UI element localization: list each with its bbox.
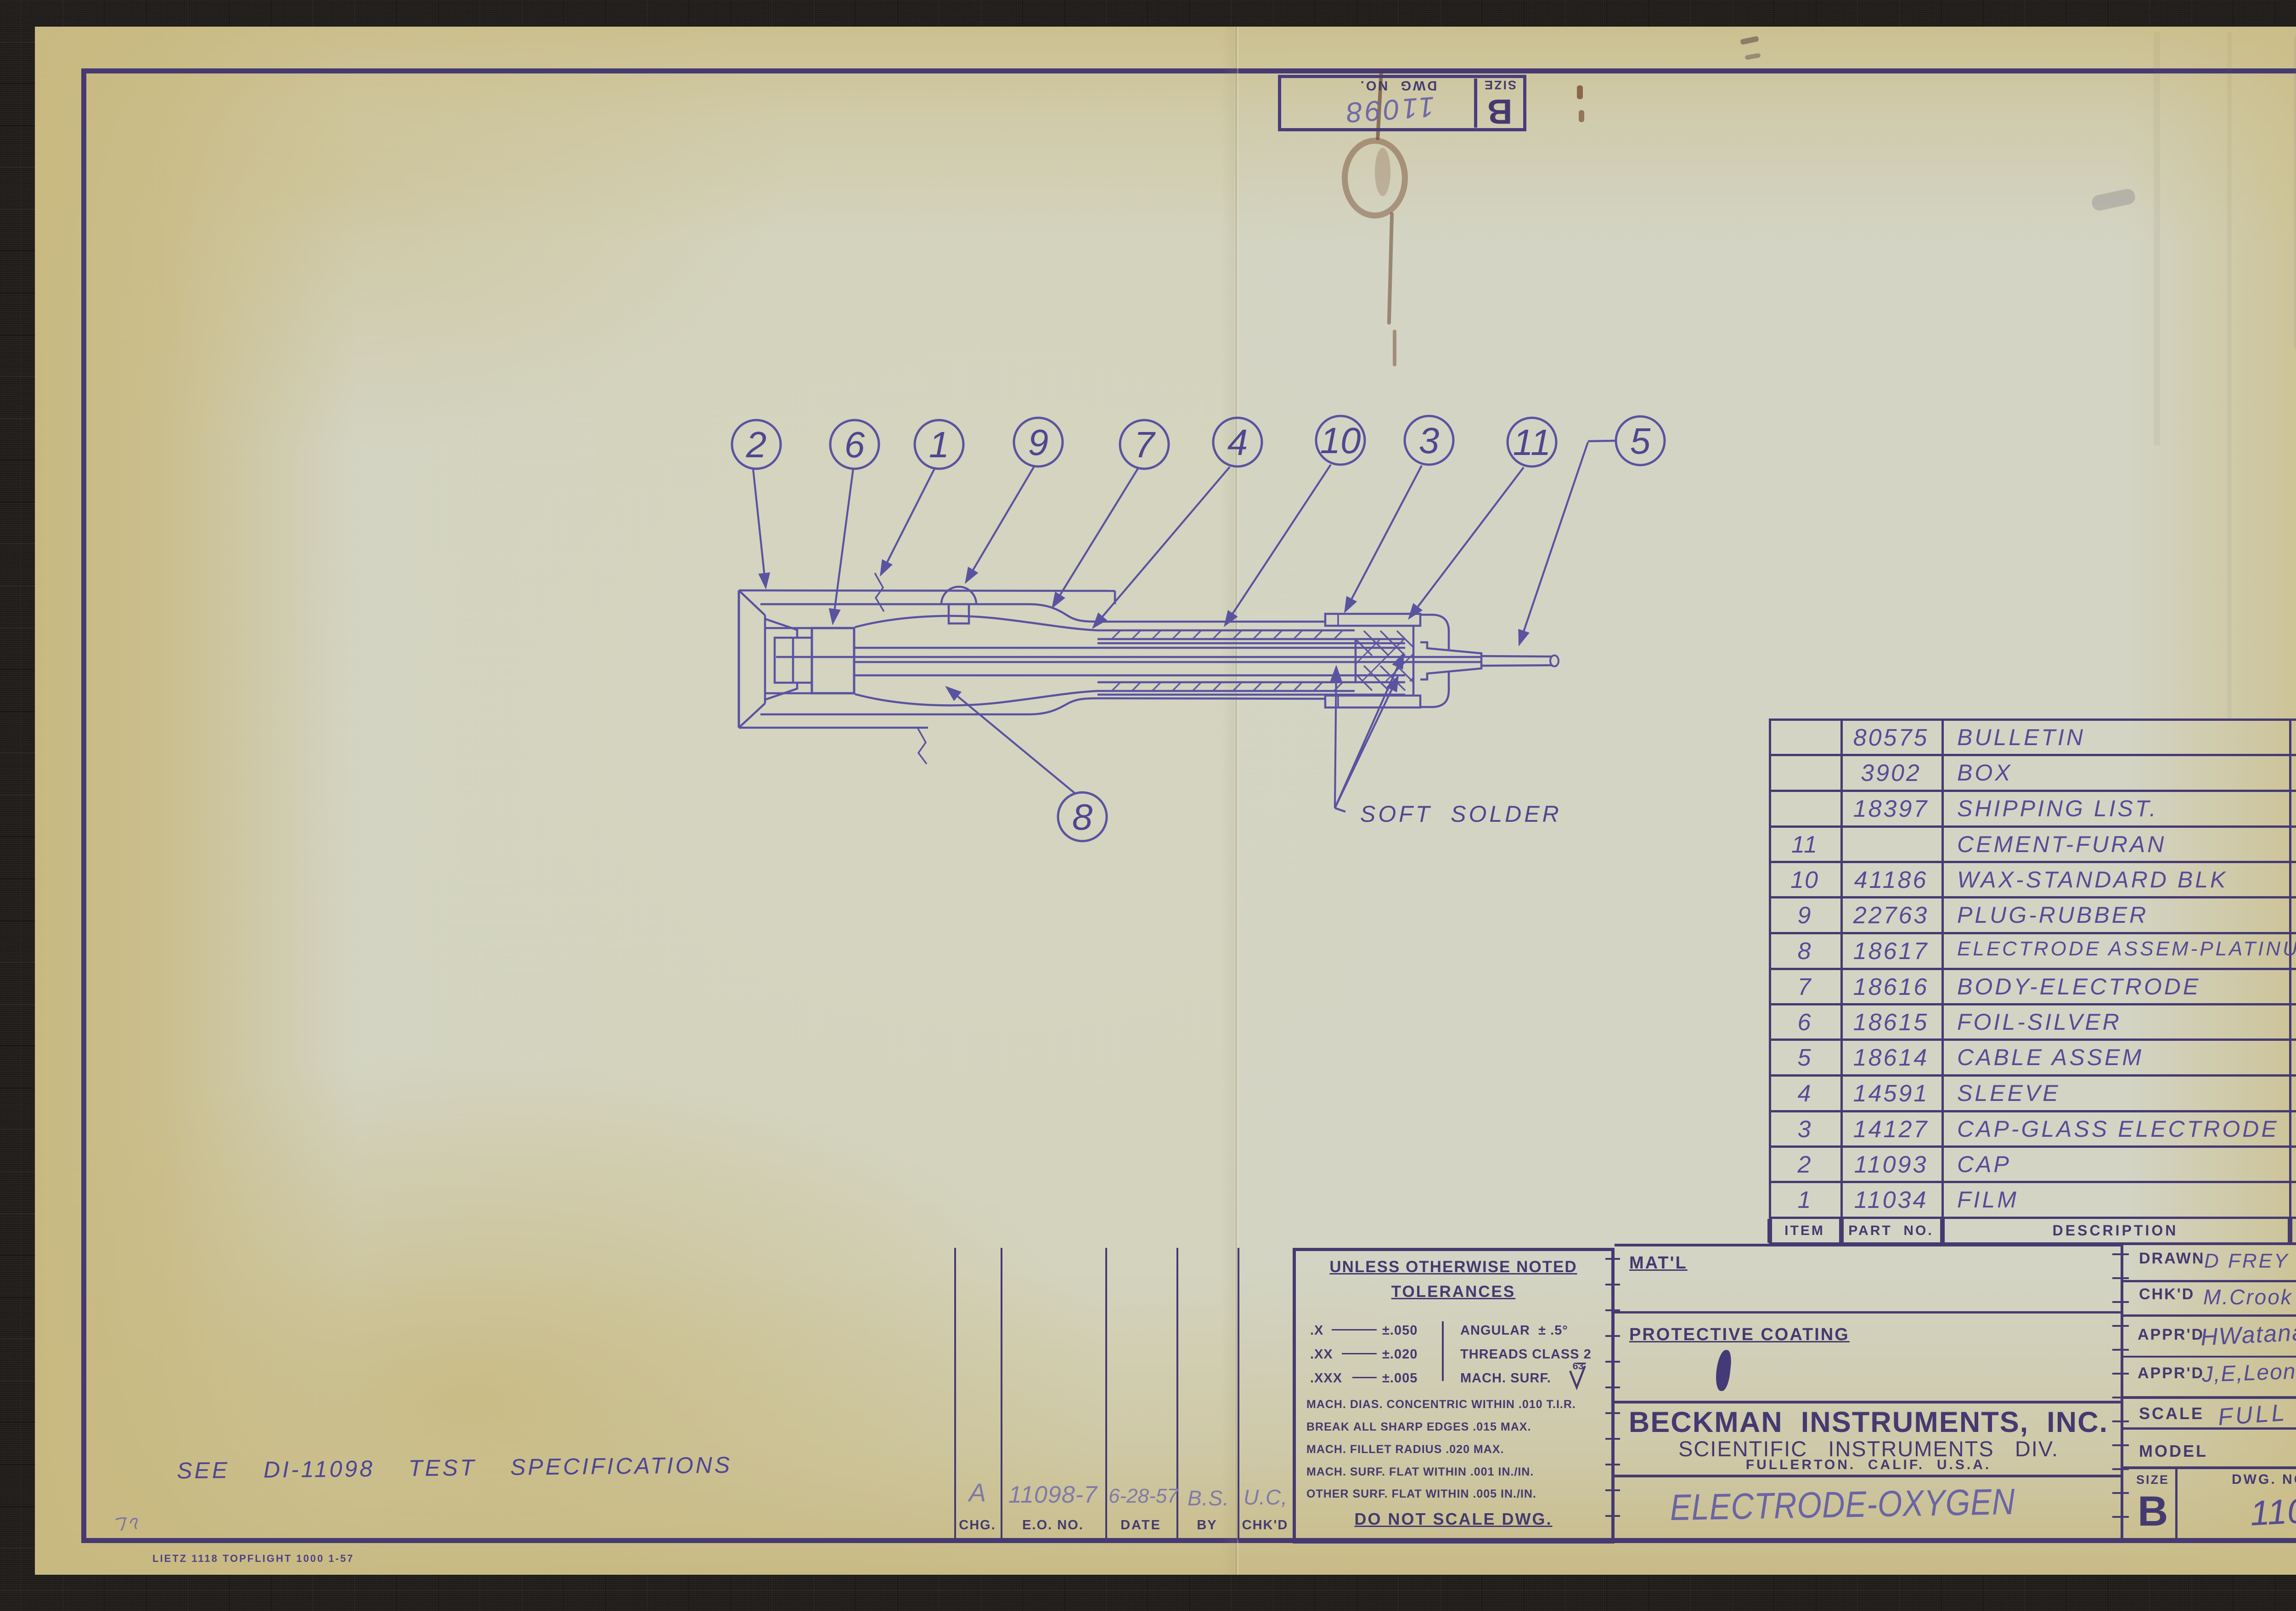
svg-text:9: 9 (1028, 422, 1049, 463)
svg-text:3: 3 (1419, 420, 1440, 461)
svg-text:5: 5 (1630, 421, 1651, 461)
svg-text:63: 63 (1573, 1362, 1584, 1371)
svg-text:8: 8 (1072, 797, 1093, 837)
svg-text:10: 10 (1320, 420, 1361, 461)
svg-text:2: 2 (746, 424, 767, 465)
svg-text:4: 4 (1227, 422, 1248, 463)
svg-text:7: 7 (1134, 424, 1156, 465)
svg-text:1: 1 (929, 424, 950, 465)
svg-text:11: 11 (1513, 422, 1551, 463)
svg-text:SOFT SOLDER: SOFT SOLDER (1360, 801, 1562, 827)
svg-text:6: 6 (844, 424, 865, 465)
